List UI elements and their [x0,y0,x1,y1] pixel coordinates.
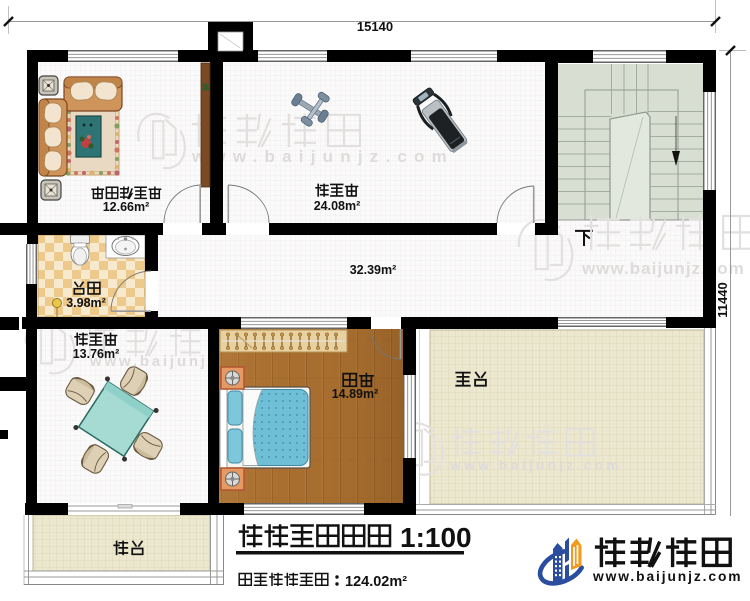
svg-text:14.89m²: 14.89m² [332,387,379,401]
svg-text:www.baijunjz.com: www.baijunjz.com [449,457,622,473]
svg-text:www.baijunjz.com: www.baijunjz.com [592,569,742,584]
svg-text:1:100: 1:100 [400,522,472,553]
svg-text:15140: 15140 [357,19,393,34]
svg-text:124.02m²: 124.02m² [345,574,407,590]
svg-text:11440: 11440 [715,282,730,317]
svg-text:12.66m²: 12.66m² [103,200,150,214]
svg-text:www.baijunjz.com: www.baijunjz.com [191,147,454,166]
svg-text:13.76m²: 13.76m² [73,347,120,361]
svg-text:www.baijunjz.com: www.baijunjz.com [581,259,745,278]
svg-text:32.39m²: 32.39m² [350,263,397,277]
svg-text:24.08m²: 24.08m² [314,199,361,213]
svg-text:3.98m²: 3.98m² [66,296,106,310]
